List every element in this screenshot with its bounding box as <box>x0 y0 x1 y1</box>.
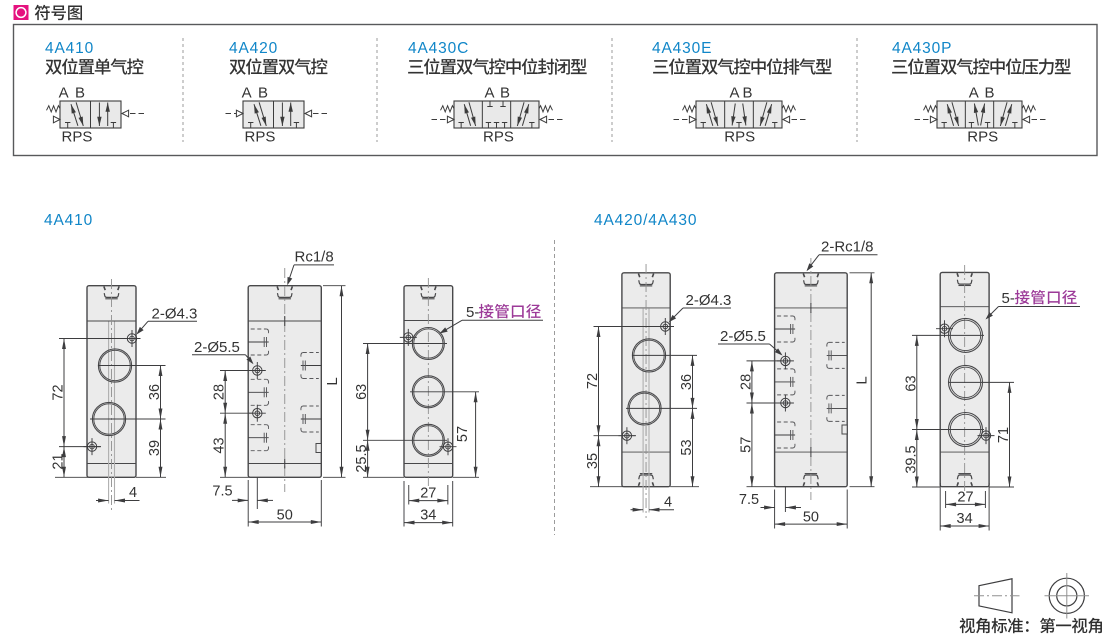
svg-text:4A420: 4A420 <box>229 40 278 57</box>
svg-text:4: 4 <box>664 495 672 511</box>
svg-text:63: 63 <box>903 375 919 391</box>
svg-text:A: A <box>242 85 252 102</box>
svg-text:27: 27 <box>420 486 436 502</box>
svg-text:4A430P: 4A430P <box>892 40 952 57</box>
svg-text:71: 71 <box>996 427 1012 443</box>
svg-text:28: 28 <box>212 384 228 400</box>
svg-text:27: 27 <box>957 490 973 506</box>
svg-text:A: A <box>484 85 494 102</box>
svg-text:A: A <box>59 85 69 102</box>
svg-text:2-Rc1/8: 2-Rc1/8 <box>821 239 874 256</box>
svg-text:4A430E: 4A430E <box>652 40 712 57</box>
svg-text:B: B <box>984 85 994 102</box>
svg-text:4A420/4A430: 4A420/4A430 <box>594 212 697 229</box>
svg-text:4A410: 4A410 <box>44 212 93 229</box>
svg-text:2-Ø5.5: 2-Ø5.5 <box>194 339 240 356</box>
svg-text:5-: 5- <box>466 304 479 321</box>
svg-text:2-Ø4.3: 2-Ø4.3 <box>686 292 732 309</box>
svg-text:B: B <box>258 85 268 102</box>
svg-text:L: L <box>324 377 341 385</box>
svg-text:RPS: RPS <box>245 129 276 146</box>
svg-text:39: 39 <box>147 440 163 456</box>
svg-text:2-Ø5.5: 2-Ø5.5 <box>720 328 766 345</box>
svg-text:53: 53 <box>679 439 695 455</box>
svg-text:34: 34 <box>420 507 436 523</box>
svg-text:RPS: RPS <box>483 129 514 146</box>
svg-text:72: 72 <box>585 373 601 389</box>
svg-text:36: 36 <box>147 384 163 400</box>
svg-text:34: 34 <box>957 511 973 527</box>
svg-text:Rc1/8: Rc1/8 <box>295 248 334 265</box>
svg-text:57: 57 <box>455 426 471 442</box>
svg-text:7.5: 7.5 <box>739 492 759 508</box>
svg-text:B: B <box>742 85 752 102</box>
svg-text:21: 21 <box>51 453 67 469</box>
svg-text:25.5: 25.5 <box>354 444 370 472</box>
svg-text:L: L <box>854 376 871 384</box>
svg-text:RPS: RPS <box>724 129 755 146</box>
svg-text:39.5: 39.5 <box>903 445 919 473</box>
svg-text:4A410: 4A410 <box>45 40 94 57</box>
svg-text:4A430C: 4A430C <box>408 40 469 57</box>
svg-text:57: 57 <box>738 437 754 453</box>
svg-text:RPS: RPS <box>62 129 93 146</box>
svg-text:35: 35 <box>585 453 601 469</box>
svg-text:RPS: RPS <box>967 129 998 146</box>
svg-text:B: B <box>75 85 85 102</box>
svg-text:A: A <box>969 85 979 102</box>
svg-text:72: 72 <box>51 384 67 400</box>
svg-text:4: 4 <box>129 485 137 501</box>
svg-text:A: A <box>729 85 739 102</box>
svg-text:7.5: 7.5 <box>212 484 232 500</box>
svg-text:36: 36 <box>679 374 695 390</box>
svg-text:50: 50 <box>803 509 819 525</box>
svg-text:B: B <box>500 85 510 102</box>
svg-text:50: 50 <box>277 508 293 524</box>
svg-text:63: 63 <box>354 384 370 400</box>
svg-text:43: 43 <box>212 437 228 453</box>
svg-text:2-Ø4.3: 2-Ø4.3 <box>152 305 198 322</box>
svg-text:5-: 5- <box>1002 290 1015 307</box>
svg-text:28: 28 <box>738 374 754 390</box>
